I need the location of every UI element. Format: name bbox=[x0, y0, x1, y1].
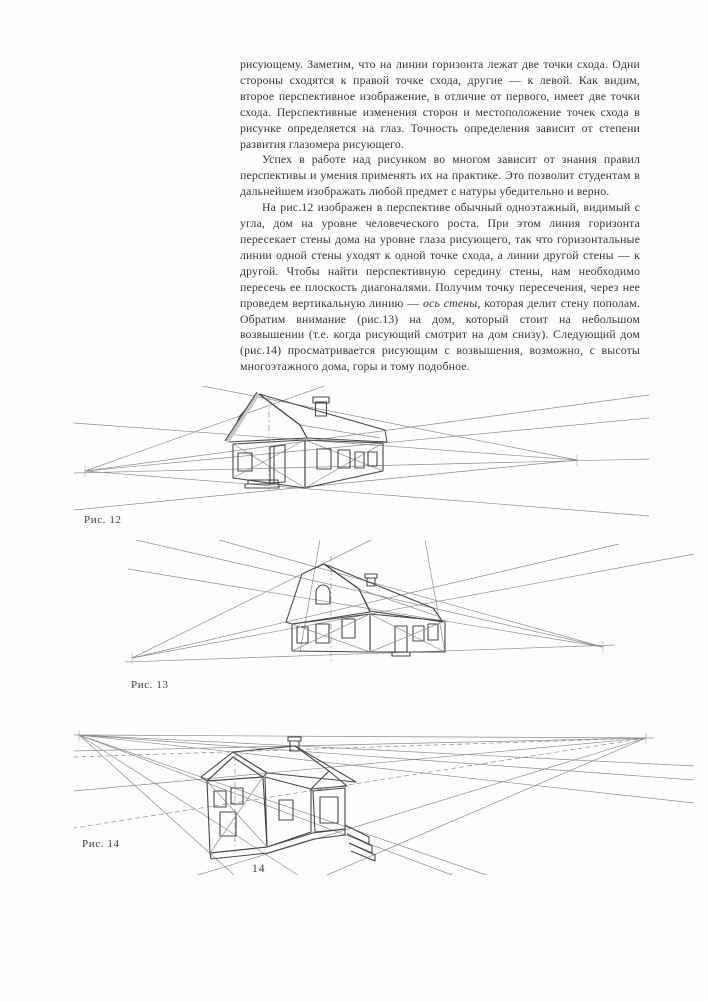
figure-14-construction-lines bbox=[74, 730, 694, 875]
page-number: 14 bbox=[252, 863, 266, 875]
figure-13-drawing bbox=[54, 540, 694, 690]
paragraph-1: рисующему. Заметим, что на линии горизон… bbox=[240, 57, 640, 152]
figure-14 bbox=[54, 705, 694, 880]
body-text: рисующему. Заметим, что на линии горизон… bbox=[240, 57, 640, 375]
paragraph-2: Успех в работе над рисунком во многом за… bbox=[240, 152, 640, 200]
figure-12-construction-lines bbox=[74, 386, 649, 516]
paragraph-3-text-a: На рис.12 изображен в перспективе обычны… bbox=[240, 200, 640, 309]
paragraph-3: На рис.12 изображен в перспективе обычны… bbox=[240, 200, 640, 375]
axis-of-wall-italic: ось стены bbox=[423, 296, 477, 310]
paragraph-1-text: рисующему. Заметим, что на линии горизон… bbox=[240, 57, 640, 151]
figure-13-caption: Рис. 13 bbox=[131, 679, 169, 691]
figure-14-drawing bbox=[54, 705, 694, 880]
paragraph-2-text: Успех в работе над рисунком во многом за… bbox=[240, 152, 640, 198]
scanned-page: рисующему. Заметим, что на линии горизон… bbox=[0, 0, 708, 1001]
figure-12-caption: Рис. 12 bbox=[84, 514, 122, 526]
figure-12-drawing bbox=[54, 386, 654, 536]
figure-12-door bbox=[270, 445, 285, 483]
figure-13-construction-lines bbox=[125, 540, 694, 664]
figure-13 bbox=[54, 540, 694, 690]
figure-13-house bbox=[286, 556, 445, 664]
figure-14-steps bbox=[345, 825, 375, 861]
figure-14-caption: Рис. 14 bbox=[82, 838, 120, 850]
figure-12 bbox=[54, 386, 654, 536]
figure-14-house bbox=[201, 737, 375, 861]
figure-13-gable bbox=[286, 564, 370, 624]
